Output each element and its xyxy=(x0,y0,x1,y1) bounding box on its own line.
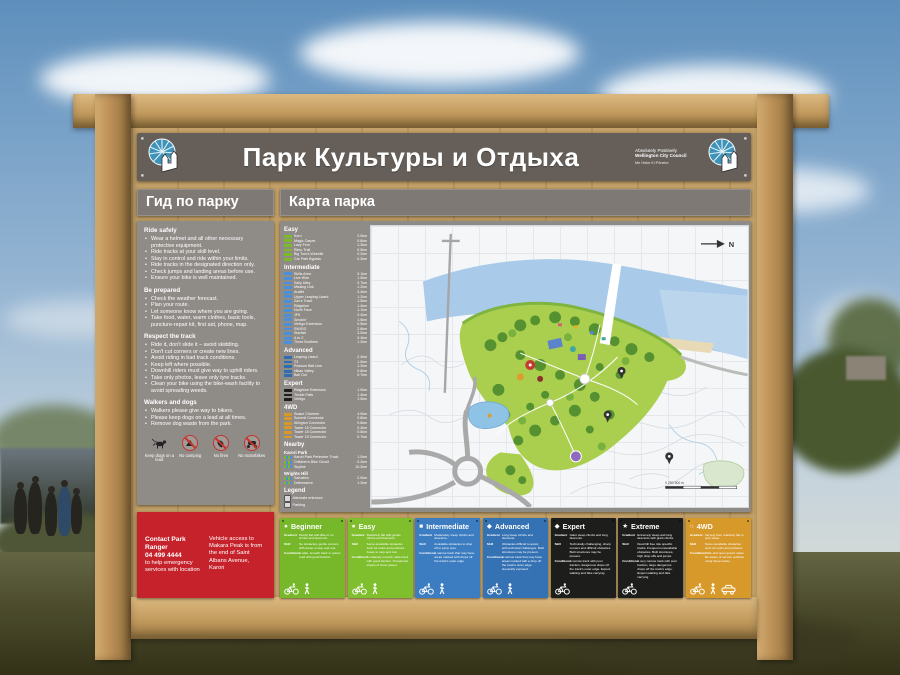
gradient-text: Giant steep climbs and long descents. xyxy=(570,534,612,542)
frame-bottom-beam xyxy=(131,597,757,639)
grade-icon: ◆ xyxy=(487,523,492,530)
grade-card: ◆ Advanced GradientLong steep climbs and… xyxy=(483,518,548,598)
trail-color-chip xyxy=(284,389,292,392)
list-item-text: Take only photos, leave only tyre tracks… xyxy=(151,375,247,381)
trail-group-heading: Nearby xyxy=(284,442,367,448)
park-map-drawing: 0 250 500 m N xyxy=(371,226,748,507)
cyclist-icon xyxy=(622,583,637,595)
gradient-text: Extremely steep and long descents with g… xyxy=(637,534,679,542)
ride-safely-list: Wear a helmet and all other necessary pr… xyxy=(144,236,267,282)
frame-top-beam xyxy=(73,94,829,128)
cloud xyxy=(300,22,580,84)
conditions-label: Conditions xyxy=(419,552,432,564)
grade-card: ● Beginner GradientMostly flat with litt… xyxy=(280,518,345,598)
trail-distance: 0.7km xyxy=(357,435,367,440)
no-fires-icon xyxy=(213,435,229,451)
council-line2: Wellington City Council xyxy=(635,153,697,159)
list-item-text: Ride tracks in the designated direction … xyxy=(151,262,255,268)
conditions-label: Conditions xyxy=(352,556,365,568)
grade-icon: ● xyxy=(352,523,356,530)
trail-color-chip xyxy=(284,361,292,364)
no-camping-icon xyxy=(182,435,198,451)
trail-group-heading: Expert xyxy=(284,381,367,387)
pictogram-no-fires: No fires xyxy=(206,435,237,464)
trail-color-chip xyxy=(284,239,292,242)
section-heading: Walkers and dogs xyxy=(144,399,267,406)
conditions-text: A wide, smooth track or gravel road with… xyxy=(299,552,341,560)
conditions-text: Wide and open gravel roads. Be aware of … xyxy=(705,552,747,564)
contact-note: to help emergency services with location xyxy=(145,560,202,574)
list-item-text: Downhill riders must give way to uphill … xyxy=(151,368,259,374)
trail-row: Vertigo1.0km xyxy=(284,397,367,402)
trail-color-chip xyxy=(284,272,292,275)
screw xyxy=(744,137,747,140)
map-panel: Easy Koru2.0kmMagic Carpet0.6kmLazy Fern… xyxy=(280,221,751,512)
cyclist-icon xyxy=(284,583,299,595)
conditions-label: Conditions xyxy=(690,552,703,564)
list-item-text: Ensure your bike is well maintained. xyxy=(151,275,237,281)
trail-color-chip xyxy=(284,456,292,459)
allowed-users-icons xyxy=(352,583,379,595)
trail-color-chip xyxy=(284,253,292,256)
trail-color-chip xyxy=(284,431,292,434)
grade-card: ■ Intermediate GradientModerately steep … xyxy=(415,518,480,598)
list-item-text: Take food, water, warm clothes, basic to… xyxy=(151,315,255,328)
sign-title: Парк Культуры и Отдыха xyxy=(187,142,635,173)
list-item: Remove dog waste from the park. xyxy=(144,421,267,428)
trail-color-chip xyxy=(284,235,292,238)
trail-color-chip xyxy=(284,323,292,326)
council-line3: Me Heke Ki Pōneke xyxy=(635,161,697,167)
conditions-text: A relatively smooth, wide track with goo… xyxy=(367,556,409,568)
grade-title: Intermediate xyxy=(426,522,469,531)
list-item: Clean your bike using the bike-wash faci… xyxy=(144,381,267,394)
list-item-text: Avoid riding in bad track conditions. xyxy=(151,355,236,361)
legend-label: Parking xyxy=(293,503,306,508)
gradient-label: Gradient xyxy=(690,534,703,542)
trail-color-chip xyxy=(284,465,292,468)
grade-icon: ○ xyxy=(690,523,694,530)
trail-row: Skyline10.3km xyxy=(284,465,367,470)
trail-color-chip xyxy=(284,277,292,280)
trail-color-chip xyxy=(284,337,292,340)
allowed-users-icons xyxy=(555,583,570,595)
grade-icon: ■ xyxy=(419,523,423,530)
conditions-text: A very narrow track with poor traction, … xyxy=(637,560,679,580)
nearby-subheading: Wrights Hill xyxy=(284,471,367,476)
skill-label: Skill xyxy=(284,543,297,551)
trail-color-chip xyxy=(284,282,292,285)
be-prepared-list: Check the weather forecast.Plan your rou… xyxy=(144,296,267,329)
trail-color-chip xyxy=(284,305,292,308)
list-item: Take food, water, warm clothes, basic to… xyxy=(144,315,267,328)
skill-label: Skill xyxy=(690,543,703,551)
trail-color-chip xyxy=(284,328,292,331)
skill-label: Skill xyxy=(487,543,500,555)
grade-card: ● Easy GradientRelatively flat with gent… xyxy=(348,518,413,598)
trail-row: Deliverance1.2km xyxy=(284,481,367,486)
trail-group-4wd: 4WD Snake Charmer4.0kmSummit Connector0.… xyxy=(284,405,367,440)
trail-color-chip xyxy=(284,417,292,420)
gradient-label: Gradient xyxy=(284,534,297,542)
guide-panel-title: Гид по парку xyxy=(137,189,274,216)
trail-color-chip xyxy=(284,426,292,429)
contact-ranger-box: Contact Park Ranger 04 499 4444 to help … xyxy=(137,512,274,598)
trail-color-chip xyxy=(284,370,292,373)
trail-row: Tower 19 Connector0.7km xyxy=(284,435,367,440)
list-item-text: Please keep dogs on a lead at all times. xyxy=(151,415,246,421)
guide-panel: Ride safely Wear a helmet and all other … xyxy=(137,221,274,505)
park-logo-icon xyxy=(145,136,183,179)
legend-title: Legend xyxy=(284,488,367,494)
grade-icon: ★ xyxy=(622,523,628,530)
trail-name: Bail Out xyxy=(294,373,355,378)
trail-row: Bail Out0.7km xyxy=(284,373,367,378)
dog-on-lead-icon xyxy=(144,435,175,452)
trail-name: Tower 19 Connector xyxy=(294,435,355,440)
trail-color-chip xyxy=(284,413,292,416)
person xyxy=(45,492,57,536)
vehicle-access-text: Vehicle access to Makara Peak is from th… xyxy=(209,536,266,572)
trail-group-heading: 4WD xyxy=(284,405,367,411)
trail-group-nearby: Nearby Karori Park Karori Park Perimeter… xyxy=(284,442,367,485)
cyclist-icon xyxy=(690,583,705,595)
skill-text: Technically challenging, sharp corners a… xyxy=(570,543,612,559)
scale-label: 0 250 500 m xyxy=(665,481,684,485)
distant-house xyxy=(846,356,886,380)
skill-label: Skill xyxy=(622,543,635,559)
cyclist-icon xyxy=(555,583,570,595)
trail-group-easy: Easy Koru2.0kmMagic Carpet0.6kmLazy Fern… xyxy=(284,227,367,262)
trail-color-chip xyxy=(284,295,292,298)
trail-color-chip xyxy=(284,356,292,359)
trail-color-chip xyxy=(284,258,292,261)
trail-name: Deliverance xyxy=(294,481,355,486)
walker-icon xyxy=(303,583,311,595)
list-item-text: Clean your bike using the bike-wash faci… xyxy=(151,381,260,394)
pictogram-row: Keep dogs on a lead No camping No fires … xyxy=(144,435,267,464)
trail-color-chip xyxy=(284,286,292,289)
conditions-label: Conditions xyxy=(487,556,500,572)
list-item: Wear a helmet and all other necessary pr… xyxy=(144,236,267,249)
trail-color-chip xyxy=(284,461,292,464)
trail-color-chip xyxy=(284,477,292,480)
trail-color-chip xyxy=(284,244,292,247)
screw xyxy=(744,174,747,177)
list-item-text: Stay in control and ride within your lim… xyxy=(151,256,249,262)
gradient-label: Gradient xyxy=(622,534,635,542)
legend-row: Parking xyxy=(284,502,367,508)
trail-color-chip xyxy=(284,318,292,321)
skill-text: Some avoidable obstacles such as rocks a… xyxy=(367,543,409,555)
grade-title: Beginner xyxy=(291,522,322,531)
allowed-users-icons xyxy=(690,583,736,595)
trail-group-intermediate: Intermediate Skills Area0.1kmLive Wire1.… xyxy=(284,265,367,346)
grade-icon: ● xyxy=(284,523,288,530)
skill-text: Avoidable obstacles to drop off or jump … xyxy=(434,543,476,551)
person xyxy=(28,482,42,534)
skill-label: Skill xyxy=(419,543,432,551)
trail-color-chip xyxy=(284,398,292,401)
legend-symbol-icon xyxy=(284,495,291,502)
gradient-label: Gradient xyxy=(352,534,365,542)
trail-row: Car Park Bypass0.3km xyxy=(284,257,367,262)
cyclist-icon xyxy=(419,583,434,595)
allowed-users-icons xyxy=(622,583,637,595)
screw xyxy=(141,137,144,140)
list-item-text: Let someone know where you are going. xyxy=(151,309,248,315)
list-item-text: Walkers please give way to bikers. xyxy=(151,408,234,414)
conditions-label: Conditions xyxy=(622,560,635,580)
grade-title: Extreme xyxy=(631,522,659,531)
list-item-text: Ride tracks at your skill level. xyxy=(151,249,221,255)
pictogram-label: No fires xyxy=(206,454,237,459)
person xyxy=(14,488,27,534)
trail-color-chip xyxy=(284,436,292,439)
trail-list-column: Easy Koru2.0kmMagic Carpet0.6kmLazy Fern… xyxy=(284,225,367,508)
contact-left: Contact Park Ranger 04 499 4444 to help … xyxy=(145,536,202,592)
trail-distance: 1.2km xyxy=(357,340,367,345)
person xyxy=(58,486,71,536)
north-label: N xyxy=(729,240,734,249)
list-item-text: Keep left where possible. xyxy=(151,362,211,368)
grade-title: Expert xyxy=(563,522,585,531)
trail-color-chip xyxy=(284,291,292,294)
gradient-label: Gradient xyxy=(555,534,568,542)
trail-name: Car Park Bypass xyxy=(294,257,355,262)
skill-label: Skill xyxy=(352,543,365,555)
trail-group-advanced: Advanced Leaping Lizard2.4kmT31.0kmPossu… xyxy=(284,348,367,378)
pictogram-label: No motorbikes xyxy=(236,454,267,459)
gradient-text: Varying from relatively flat to very ste… xyxy=(705,534,747,542)
list-item-text: Check the weather forecast. xyxy=(151,296,218,302)
trail-name: Skyline xyxy=(294,465,353,470)
list-item-text: Check jumps and landing areas before use… xyxy=(151,269,255,275)
trail-color-chip xyxy=(284,482,292,485)
skill-text: Some avoidable obstacles such as rocks a… xyxy=(705,543,747,551)
trail-color-chip xyxy=(284,394,292,397)
trail-group-expert: Expert Ridgeline Extension1.0kmTrickle F… xyxy=(284,381,367,402)
pictogram-label: No camping xyxy=(175,454,206,459)
walkers-dogs-list: Walkers please give way to bikers.Please… xyxy=(144,408,267,428)
council-text: Absolutely Positively Wellington City Co… xyxy=(635,148,697,167)
legend-symbol-icon xyxy=(284,502,291,508)
gradient-text: Long steep climbs and descents. xyxy=(502,534,544,542)
respect-track-list: Ride it, don't slide it – avoid skidding… xyxy=(144,342,267,394)
person xyxy=(71,494,82,534)
skill-text: Downhill free ride specific tracks. Freq… xyxy=(637,543,679,559)
trail-color-chip xyxy=(284,314,292,317)
screw xyxy=(141,174,144,177)
trail-color-chip xyxy=(284,341,292,344)
allowed-users-icons xyxy=(419,583,446,595)
walker-icon xyxy=(371,583,379,595)
frame-left-post xyxy=(95,94,131,660)
trail-group-heading: Advanced xyxy=(284,348,367,354)
skill-text: No obstacles, gentle corners, with areas… xyxy=(299,543,341,551)
trail-distance: 1.0km xyxy=(357,397,367,402)
header-panel: Парк Культуры и Отдыха Absolutely Positi… xyxy=(137,133,751,181)
trail-color-chip xyxy=(284,374,292,377)
map-panel-title: Карта парка xyxy=(280,189,751,216)
grade-icon: ◆ xyxy=(555,523,560,530)
trail-distance: 0.3km xyxy=(357,257,367,262)
pictogram-no-camping: No camping xyxy=(175,435,206,464)
conditions-text: A narrow track that may have areas marke… xyxy=(434,552,476,564)
contact-phone: 04 499 4444 xyxy=(145,552,202,560)
trail-group-heading: Intermediate xyxy=(284,265,367,271)
legend-list: Alternate entranceParkingEmergency vehic… xyxy=(284,495,367,508)
grade-title: 4WD xyxy=(697,522,713,531)
list-item-text: Wear a helmet and all other necessary pr… xyxy=(151,236,243,249)
contact-right: Vehicle access to Makara Peak is from th… xyxy=(209,536,266,592)
grade-card: ★ Extreme GradientExtremely steep and lo… xyxy=(618,518,683,598)
nearby-subheading: Karori Park xyxy=(284,450,367,455)
conditions-label: Conditions xyxy=(555,560,568,576)
cyclist-icon xyxy=(352,583,367,595)
frame-right-post xyxy=(757,94,793,660)
trail-distance: 10.3km xyxy=(355,465,367,470)
grade-card: ◆ Expert GradientGiant steep climbs and … xyxy=(551,518,616,598)
trail-color-chip xyxy=(284,365,292,368)
contact-title: Contact Park Ranger xyxy=(145,536,202,552)
walker-icon xyxy=(506,583,514,595)
north-arrow-icon: N xyxy=(701,240,734,249)
trail-distance: 1.2km xyxy=(357,481,367,486)
car-icon xyxy=(721,584,736,595)
trail-name: Vertigo xyxy=(294,397,355,402)
trail-color-chip xyxy=(284,332,292,335)
gradient-text: Mostly flat with little or no climbs and… xyxy=(299,534,341,542)
list-item-text: Plan your route. xyxy=(151,302,189,308)
no-motorbikes-icon xyxy=(244,435,260,451)
trail-row: Three Brothers1.2km xyxy=(284,340,367,345)
grade-cards-row: ● Beginner GradientMostly flat with litt… xyxy=(280,518,751,598)
trail-color-chip xyxy=(284,422,292,425)
gradient-label: Gradient xyxy=(419,534,432,542)
list-item: Ensure your bike is well maintained. xyxy=(144,275,267,282)
section-heading: Be prepared xyxy=(144,287,267,294)
gradient-text: Moderately steep climbs and descents. xyxy=(434,534,476,542)
trail-color-chip xyxy=(284,249,292,252)
list-item-text: Don't cut corners or create new lines. xyxy=(151,349,240,355)
section-heading: Ride safely xyxy=(144,227,267,234)
skill-text: Obstacles difficult to avoid, with techn… xyxy=(502,543,544,555)
trail-distance: 0.7km xyxy=(357,373,367,378)
gradient-label: Gradient xyxy=(487,534,500,542)
allowed-users-icons xyxy=(284,583,311,595)
legend-label: Alternate entrance xyxy=(293,496,323,501)
pictogram-label: Keep dogs on a lead xyxy=(144,454,175,464)
conditions-text: A narrow track with poor traction, dange… xyxy=(570,560,612,576)
walker-icon xyxy=(438,583,446,595)
skill-label: Skill xyxy=(555,543,568,559)
allowed-users-icons xyxy=(487,583,514,595)
trail-name: Three Brothers xyxy=(294,340,355,345)
section-heading: Respect the track xyxy=(144,333,267,340)
gradient-text: Relatively flat with gentle climbs and d… xyxy=(367,534,409,542)
pictogram-no-motorbikes: No motorbikes xyxy=(236,435,267,464)
grade-card: ○ 4WD GradientVarying from relatively fl… xyxy=(686,518,751,598)
grade-title: Advanced xyxy=(495,522,529,531)
conditions-text: A narrow track that may have areas marke… xyxy=(502,556,544,572)
list-item-text: Remove dog waste from the park. xyxy=(151,421,232,427)
park-map: 0 250 500 m N xyxy=(370,225,749,508)
grade-title: Easy xyxy=(359,522,376,531)
trail-color-chip xyxy=(284,309,292,312)
park-logo-icon xyxy=(705,136,743,179)
trail-group-heading: Easy xyxy=(284,227,367,233)
pictogram-dogs: Keep dogs on a lead xyxy=(144,435,175,464)
cyclist-icon xyxy=(487,583,502,595)
list-item-text: Ride it, don't slide it – avoid skidding… xyxy=(151,342,239,348)
trail-color-chip xyxy=(284,300,292,303)
walker-icon xyxy=(709,583,717,595)
conditions-label: Conditions xyxy=(284,552,297,560)
